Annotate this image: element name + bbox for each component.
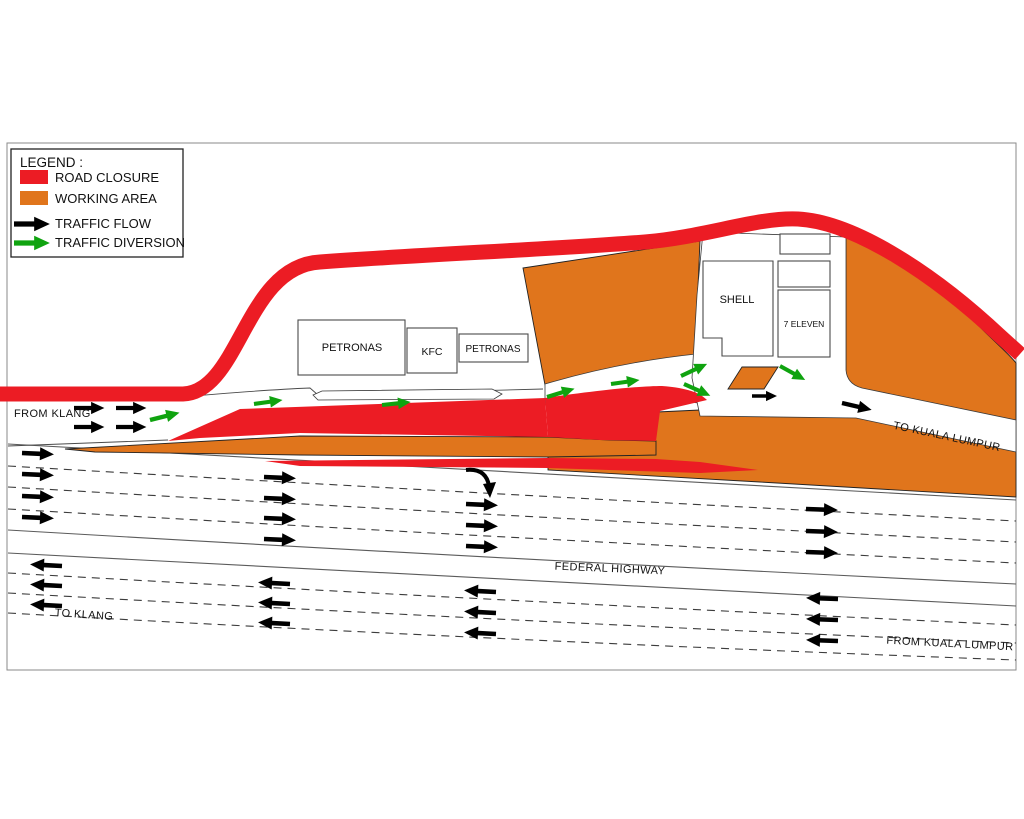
kfc-label: KFC [422, 346, 443, 358]
shell-label: SHELL [720, 294, 755, 306]
lane-merge-hook-head [483, 482, 496, 498]
from-klang-label: FROM KLANG [14, 408, 91, 420]
small-building-2 [778, 261, 830, 287]
to-klang-label: TO KLANG [54, 607, 113, 623]
small-building-1 [780, 234, 830, 254]
plan-canvas: PETRONAS KFC PETRONAS SHELL 7 ELEVEN [0, 0, 1024, 819]
federal-highway-label: FEDERAL HIGHWAY [554, 561, 665, 578]
working-area-legend-label: WORKING AREA [55, 191, 157, 206]
legend: LEGEND : ROAD CLOSURE WORKING AREA TRAFF… [11, 149, 185, 257]
working-area-swatch [20, 191, 48, 205]
legend-title: LEGEND : [20, 155, 83, 170]
traffic-diversion-plan: PETRONAS KFC PETRONAS SHELL 7 ELEVEN [0, 0, 1024, 819]
petronas-canopy [313, 389, 502, 400]
from-kuala-lumpur-label: FROM KUALA LUMPUR [886, 635, 1014, 654]
road-closure-swatch [20, 170, 48, 184]
seven-eleven-label: 7 ELEVEN [784, 319, 825, 329]
petronas-right-label: PETRONAS [465, 344, 520, 355]
traffic-flow-legend-label: TRAFFIC FLOW [55, 216, 152, 231]
petronas-left-label: PETRONAS [322, 342, 383, 354]
working-area-median-wedge [65, 436, 656, 457]
traffic-diversion-legend-label: TRAFFIC DIVERSION [55, 235, 185, 250]
working-areas [65, 236, 1016, 497]
lane-merge-hook-arrow [466, 470, 489, 486]
road-closure-ramp-wedge [168, 398, 548, 441]
road-closure-legend-label: ROAD CLOSURE [55, 170, 159, 185]
